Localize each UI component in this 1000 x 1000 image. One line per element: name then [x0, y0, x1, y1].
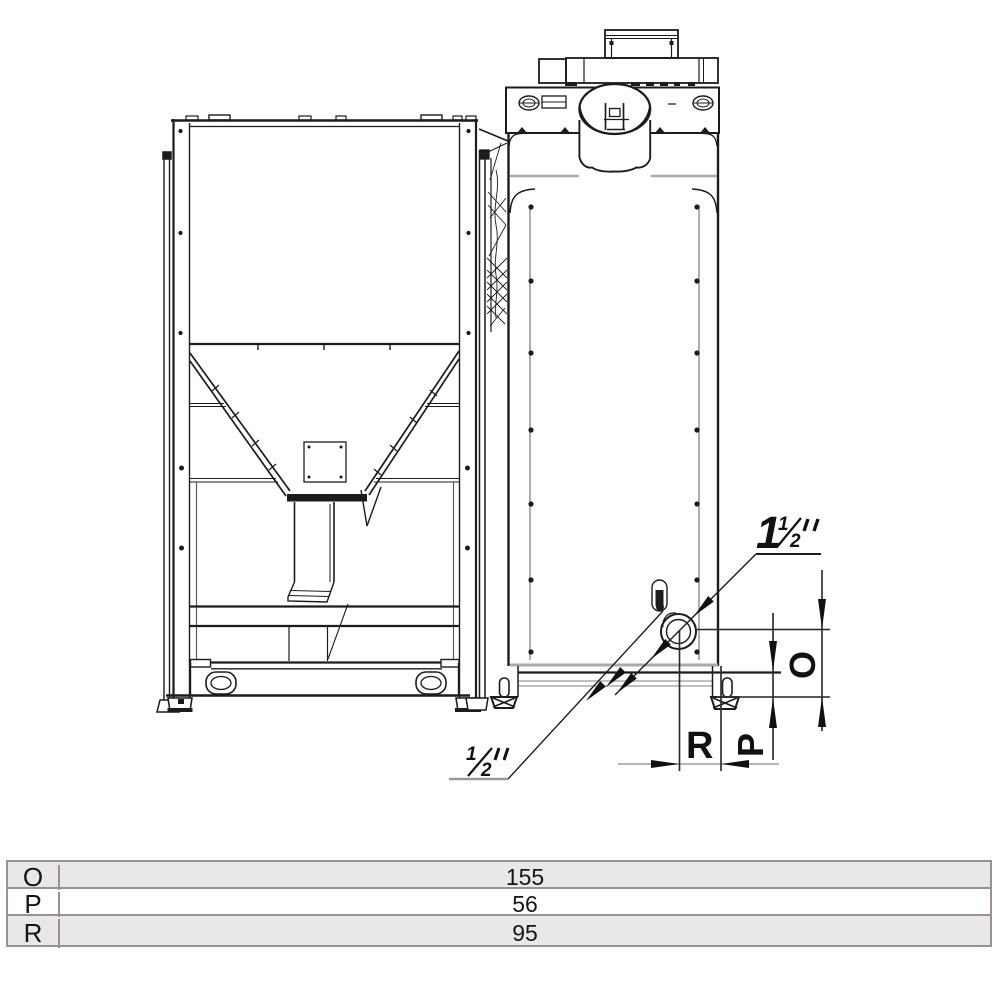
svg-text:O: O: [782, 651, 823, 679]
svg-text:P: P: [730, 733, 771, 757]
svg-text:1: 1: [778, 514, 789, 535]
svg-text:R: R: [686, 725, 713, 767]
svg-text:2: 2: [789, 531, 801, 552]
svg-text:1: 1: [466, 744, 477, 765]
svg-text:2: 2: [480, 760, 492, 781]
